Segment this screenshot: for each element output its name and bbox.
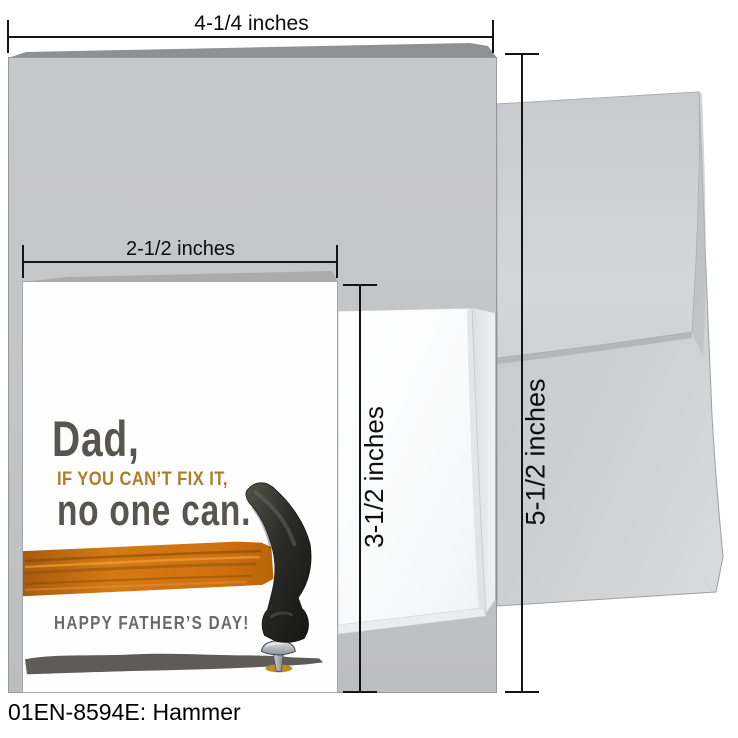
dimension-tick [492, 20, 494, 53]
dimension-tick [505, 53, 539, 55]
dimension-tick [505, 691, 539, 693]
dimension-label-large-card-width: 4-1/4 inches [9, 13, 494, 34]
dimension-tick [22, 245, 24, 278]
greeting-line-no-one-can: no one can. [57, 489, 251, 533]
product-mockup-image: Dad, IF YOU CAN’T FIX IT, no one can. HA… [0, 0, 738, 738]
dimension-tick [343, 691, 377, 693]
product-caption: 01EN-8594E: Hammer [8, 699, 241, 726]
dimension-tick [7, 20, 9, 53]
large-card-back-panel-edge [8, 42, 497, 58]
dimension-tick [336, 245, 338, 278]
envelope-graphic [490, 85, 738, 610]
dimension-line [8, 36, 494, 38]
greeting-line-dad: Dad, [52, 414, 140, 464]
dimension-line [521, 54, 523, 693]
dimension-tick [343, 284, 377, 286]
hammer-handle [23, 542, 273, 597]
dimension-label-envelope-height: 5-1/2 inches [523, 378, 550, 525]
small-card-front: Dad, IF YOU CAN’T FIX IT, no one can. HA… [22, 281, 338, 693]
greeting-line-happy-fathers-day: HAPPY FATHER’S DAY! [54, 614, 250, 632]
dimension-label-small-card-height: 3-1/2 inches [361, 406, 387, 548]
dimension-label-small-card-width: 2-1/2 inches [23, 239, 338, 259]
envelope-flap [497, 92, 699, 358]
dimension-line [23, 261, 338, 263]
